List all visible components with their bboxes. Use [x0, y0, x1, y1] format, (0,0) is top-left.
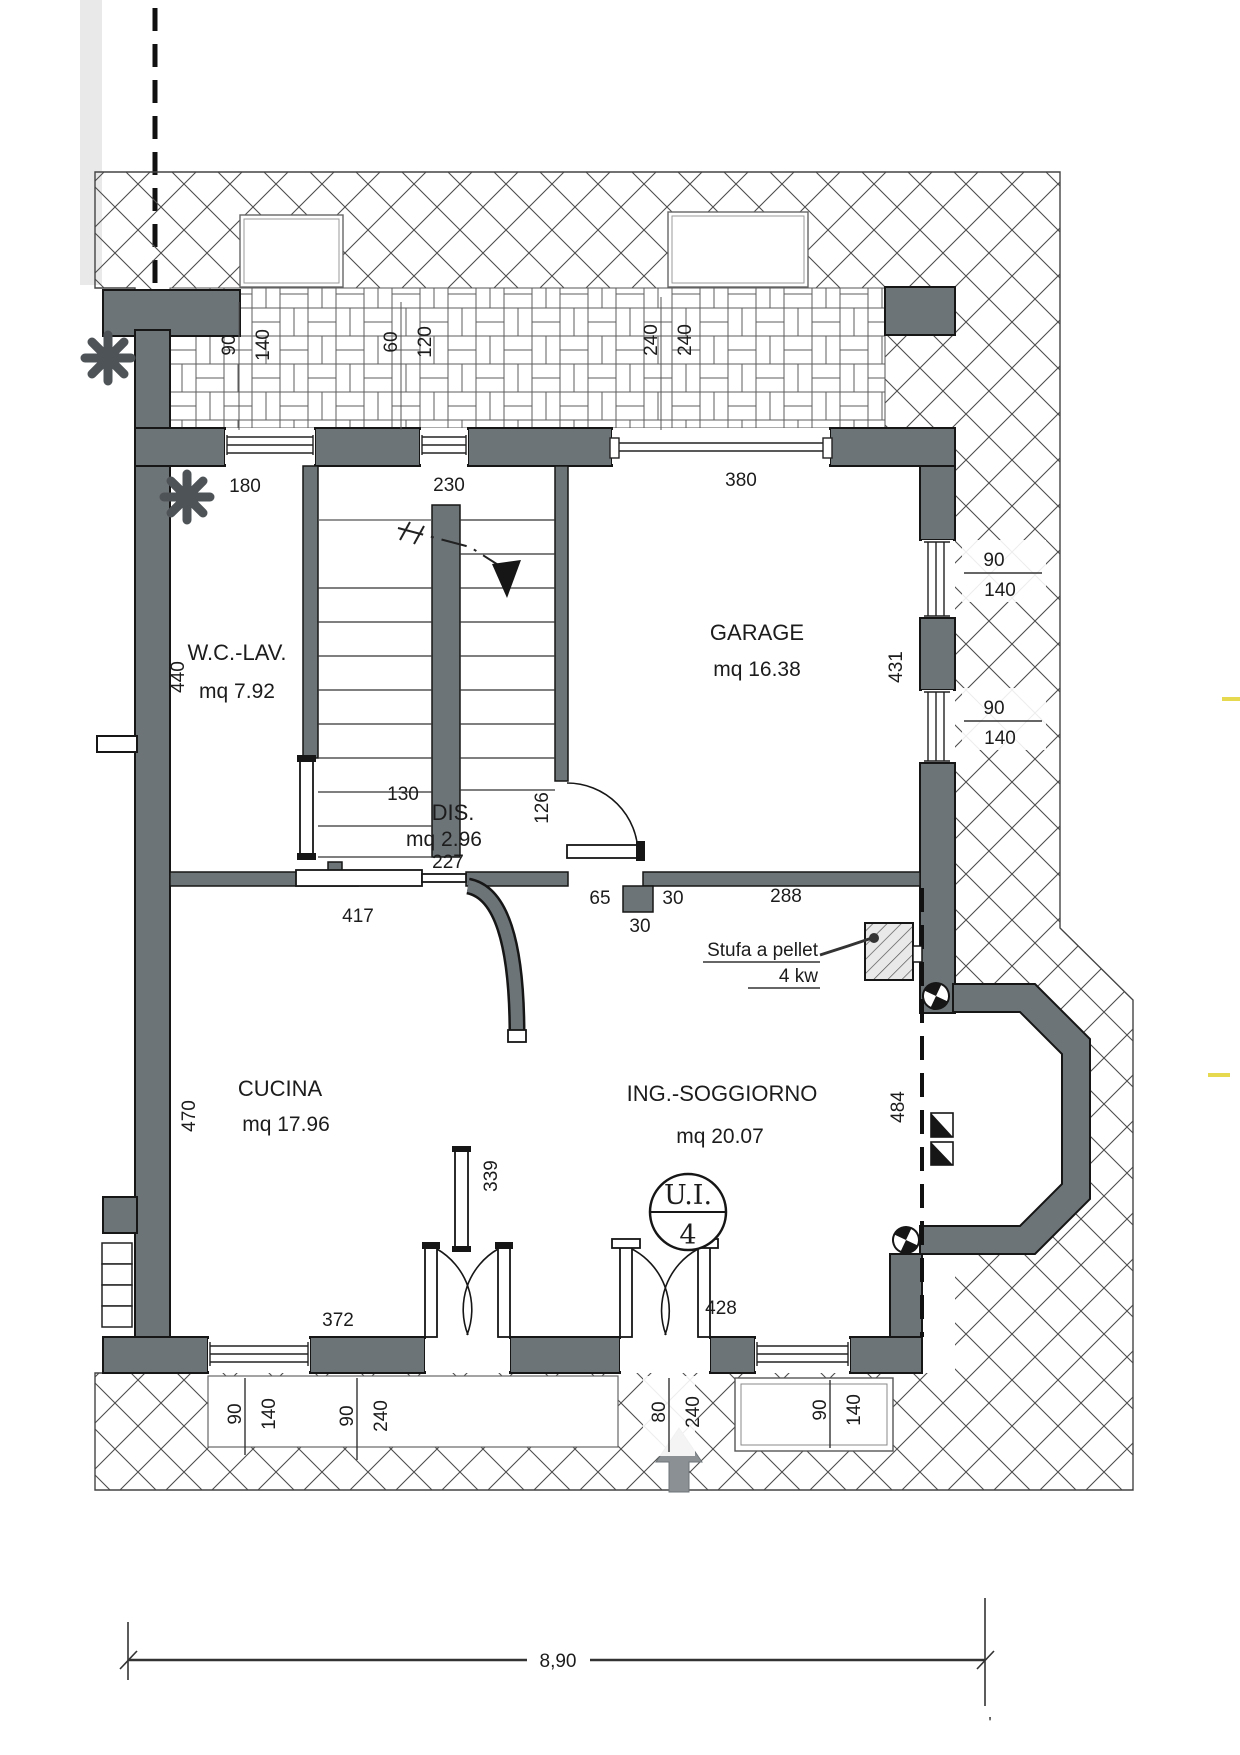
wall-top-right-pier	[885, 287, 955, 335]
wall-bottom-seg5	[850, 1337, 922, 1373]
wall-top-seg3	[468, 428, 612, 466]
svg-text:90: 90	[337, 1405, 358, 1426]
dim-372: 372	[322, 1310, 354, 1331]
garage-door	[610, 430, 832, 464]
opening-size-garage-window-upper: 90 140	[962, 540, 1046, 602]
wc-door	[297, 755, 316, 860]
dim-227: 227	[432, 852, 464, 873]
dim-380: 380	[725, 470, 757, 491]
light-well-right	[668, 212, 808, 287]
scan-artifact	[1208, 1073, 1230, 1077]
room-area-wc: mq 7.92	[199, 680, 275, 703]
wall-pillar-notch	[623, 886, 653, 912]
svg-text:140: 140	[259, 1398, 280, 1430]
garage-window-lower	[922, 690, 953, 763]
floor-plan: W.C.-LAV. mq 7.92 DIS. mq 2.96 GARAGE mq…	[0, 0, 1240, 1755]
room-area-dis: mq 2.96	[406, 828, 482, 851]
dim-470: 470	[179, 1100, 200, 1132]
wall-right-seg1	[920, 466, 955, 540]
wall-bottom-seg3	[510, 1337, 620, 1373]
room-label-wc: W.C.-LAV.	[187, 640, 286, 665]
stair-wall-left	[303, 466, 318, 758]
partition-leaf	[452, 1146, 471, 1252]
window-top-left	[225, 430, 315, 464]
wall-bottom-seg2	[310, 1337, 425, 1373]
svg-text:80: 80	[649, 1401, 670, 1422]
wall-top-seg2	[315, 428, 420, 466]
dim-288: 288	[770, 886, 802, 907]
svg-text:240: 240	[675, 324, 696, 356]
garage-window-upper	[922, 540, 953, 618]
room-area-garage: mq 16.38	[713, 658, 801, 681]
scan-artifact	[1222, 697, 1240, 701]
svg-text:140: 140	[984, 580, 1016, 601]
room-label-soggiorno: ING.-SOGGIORNO	[627, 1081, 818, 1106]
room-area-cucina: mq 17.96	[242, 1113, 330, 1136]
dim-431: 431	[886, 651, 907, 683]
wall-bottom-seg4	[710, 1337, 755, 1373]
svg-text:90: 90	[810, 1399, 831, 1420]
wall-top-seg1	[135, 428, 225, 466]
exterior-steps	[102, 1243, 132, 1327]
wall-left	[135, 330, 170, 1340]
dim-130: 130	[387, 784, 419, 805]
window-top-mid	[420, 430, 468, 464]
svg-text:4 kw: 4 kw	[779, 966, 818, 987]
dim-total-width: 8,90	[540, 1651, 577, 1672]
svg-text:140: 140	[253, 329, 274, 361]
stair-wall-right	[555, 466, 568, 781]
unit-badge-label: U.I.	[664, 1180, 712, 1211]
wall-left-jut	[103, 1197, 137, 1233]
svg-text:90: 90	[983, 698, 1004, 719]
kitchen-window	[208, 1339, 310, 1371]
dim-65: 65	[589, 888, 610, 909]
unit-badge: U.I. 4	[650, 1174, 726, 1251]
svg-text:90: 90	[225, 1403, 246, 1424]
svg-text:Stufa a pellet: Stufa a pellet	[707, 940, 819, 961]
fence-stub	[97, 736, 137, 752]
floor-plan-page: W.C.-LAV. mq 7.92 DIS. mq 2.96 GARAGE mq…	[0, 0, 1240, 1755]
opening-size-entrance-door: 80 240	[643, 1376, 704, 1456]
building-interior	[135, 428, 955, 1373]
dim-339: 339	[481, 1160, 502, 1192]
dim-230: 230	[433, 475, 465, 496]
room-label-dis: DIS.	[432, 800, 475, 825]
svg-text:140: 140	[984, 728, 1016, 749]
dim-30a: 30	[662, 888, 683, 909]
wall-right-seg3	[920, 763, 955, 1013]
svg-text:120: 120	[415, 326, 436, 358]
wall-top-seg4	[830, 428, 955, 466]
dim-30b: 30	[629, 916, 650, 937]
living-window	[755, 1339, 850, 1371]
scale-dimension-line: 8,90 '	[120, 1598, 994, 1732]
dim-417: 417	[342, 906, 374, 927]
brick-porch-band	[170, 288, 885, 428]
wall-mid-seg3	[643, 872, 920, 886]
wall-bottom-seg1	[103, 1337, 208, 1373]
opening-size-garage-window-lower: 90 140	[962, 688, 1046, 750]
radiator-icon	[164, 474, 210, 520]
scale-end-mark: '	[988, 1715, 991, 1732]
svg-text:240: 240	[371, 1400, 392, 1432]
wall-top-left-cap	[103, 290, 240, 336]
radiator-icon	[85, 335, 131, 381]
dim-180: 180	[229, 476, 261, 497]
dim-484: 484	[888, 1091, 909, 1123]
dim-126: 126	[532, 792, 553, 824]
wall-right-seg2	[920, 618, 955, 690]
dim-440: 440	[168, 661, 189, 693]
svg-text:60: 60	[381, 331, 402, 352]
svg-text:90: 90	[983, 550, 1004, 571]
room-label-garage: GARAGE	[710, 620, 804, 645]
svg-text:240: 240	[683, 1396, 704, 1428]
svg-text:140: 140	[844, 1394, 865, 1426]
svg-text:90: 90	[219, 334, 240, 355]
room-area-soggiorno: mq 20.07	[676, 1125, 764, 1148]
unit-badge-number: 4	[679, 1220, 696, 1251]
light-well-left	[240, 215, 343, 287]
svg-text:240: 240	[641, 324, 662, 356]
room-label-cucina: CUCINA	[238, 1076, 323, 1101]
dim-428: 428	[705, 1298, 737, 1319]
